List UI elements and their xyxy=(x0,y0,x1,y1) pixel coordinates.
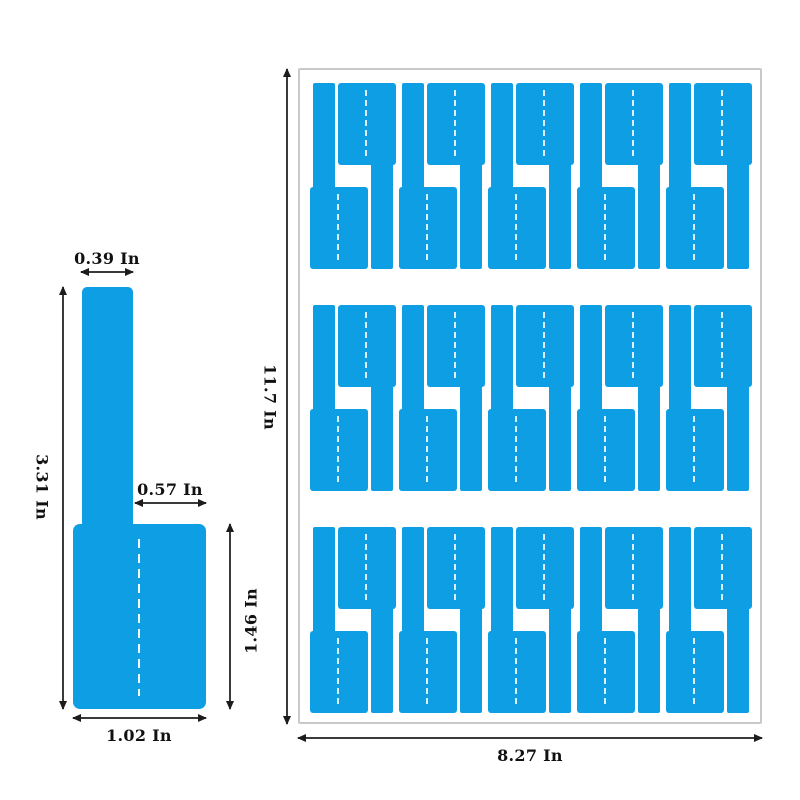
label-perforation-line xyxy=(543,534,545,602)
cable-label-up xyxy=(338,83,396,269)
label-flag xyxy=(338,527,396,609)
label-flag xyxy=(516,83,574,165)
label-perforation-line xyxy=(721,534,723,602)
cable-label-up xyxy=(516,527,574,713)
label-tail xyxy=(727,607,749,713)
label-tail xyxy=(549,607,571,713)
label-tail xyxy=(580,305,602,411)
label-flag xyxy=(516,527,574,609)
label-perforation-line xyxy=(632,90,634,158)
label-flag xyxy=(694,305,752,387)
label-tail xyxy=(580,83,602,189)
label-flag xyxy=(694,83,752,165)
dim-shoulder-width-arrow xyxy=(135,502,206,504)
cable-label-up xyxy=(338,305,396,491)
cable-label-up xyxy=(694,527,752,713)
label-tail xyxy=(313,527,335,633)
label-perforation-line xyxy=(632,534,634,602)
dim-total-height-arrow xyxy=(62,287,64,709)
dim-sheet-height-arrow xyxy=(286,69,288,724)
label-tail xyxy=(491,83,513,189)
cable-label-up xyxy=(694,305,752,491)
label-tail xyxy=(460,163,482,269)
cable-label-up xyxy=(605,527,663,713)
label-tail xyxy=(491,527,513,633)
diagram-canvas: 0.39 In 3.31 In 0.57 In 1.46 In 1.02 In … xyxy=(0,0,800,800)
label-perforation-line xyxy=(454,90,456,158)
label-flag xyxy=(605,527,663,609)
label-perforation-line xyxy=(365,90,367,158)
dim-flag-width-arrow xyxy=(73,717,206,719)
label-tail xyxy=(549,163,571,269)
cable-label-up xyxy=(516,305,574,491)
label-tail xyxy=(727,385,749,491)
label-perforation-line xyxy=(454,534,456,602)
label-perforation-line xyxy=(721,312,723,380)
cable-label-up xyxy=(516,83,574,269)
label-flag xyxy=(694,527,752,609)
label-tail xyxy=(669,305,691,411)
label-sheet xyxy=(298,68,762,724)
dim-flag-height-arrow xyxy=(229,524,231,709)
label-tail xyxy=(313,83,335,189)
label-flag xyxy=(605,305,663,387)
label-tail xyxy=(491,305,513,411)
dim-sheet-width-arrow xyxy=(298,737,762,739)
label-tail xyxy=(371,385,393,491)
label-tail xyxy=(460,385,482,491)
label-tail xyxy=(638,607,660,713)
cable-label-up xyxy=(427,527,485,713)
label-tail xyxy=(669,83,691,189)
label-tail xyxy=(371,607,393,713)
dim-shoulder-width-label: 0.57 In xyxy=(120,480,220,499)
label-flag xyxy=(338,305,396,387)
label-flag xyxy=(338,83,396,165)
label-perforation-line xyxy=(543,90,545,158)
cable-label-up xyxy=(605,83,663,269)
dim-flag-width-label: 1.02 In xyxy=(89,726,189,745)
label-perforation-line xyxy=(543,312,545,380)
label-tail xyxy=(402,527,424,633)
label-perforation-line xyxy=(721,90,723,158)
label-tail xyxy=(313,305,335,411)
label-tail xyxy=(669,527,691,633)
label-flag xyxy=(427,527,485,609)
dim-sheet-width-label: 8.27 In xyxy=(298,746,762,765)
cable-label-up xyxy=(338,527,396,713)
dim-sheet-height-label: 11.7 In xyxy=(261,364,280,430)
label-tail xyxy=(402,305,424,411)
label-perforation-line xyxy=(632,312,634,380)
label-perforation-line xyxy=(138,539,140,696)
cable-label-up xyxy=(427,305,485,491)
label-flag xyxy=(605,83,663,165)
label-tail xyxy=(371,163,393,269)
label-perforation-line xyxy=(454,312,456,380)
dim-total-height-label: 3.31 In xyxy=(33,454,52,520)
label-tail xyxy=(638,385,660,491)
label-tail xyxy=(460,607,482,713)
label-tail xyxy=(402,83,424,189)
cable-label-up xyxy=(605,305,663,491)
label-flag xyxy=(427,305,485,387)
dim-flag-height-label: 1.46 In xyxy=(242,588,261,654)
label-flag xyxy=(427,83,485,165)
label-flag xyxy=(516,305,574,387)
label-perforation-line xyxy=(365,312,367,380)
label-perforation-line xyxy=(365,534,367,602)
label-tail xyxy=(638,163,660,269)
dim-strip-width-label: 0.39 In xyxy=(57,249,157,268)
dim-strip-width-arrow xyxy=(81,271,133,273)
label-tail xyxy=(727,163,749,269)
label-tail xyxy=(580,527,602,633)
label-tail xyxy=(549,385,571,491)
cable-label-up xyxy=(694,83,752,269)
cable-label-up xyxy=(427,83,485,269)
